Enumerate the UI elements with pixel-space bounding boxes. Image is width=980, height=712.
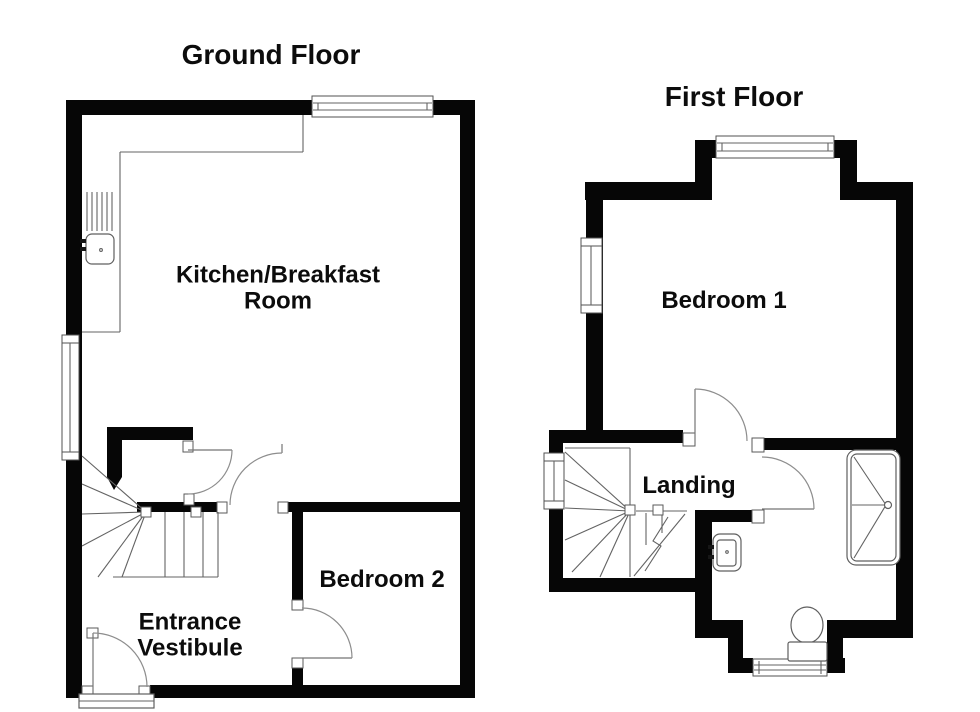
entrance-step (79, 694, 154, 708)
landing-side-window (544, 453, 564, 509)
cupboard-door (188, 450, 232, 494)
first-floor-title: First Floor (665, 82, 803, 112)
room-label-bedroom1: Bedroom 1 (661, 288, 786, 314)
first-floor-plan (544, 136, 913, 676)
bedroom1-side-window (581, 238, 602, 313)
bay-window (716, 136, 834, 158)
bathtub (847, 450, 900, 565)
room-label-landing: Landing (642, 473, 735, 499)
bedroom1-door (695, 389, 747, 441)
kitchen-sink (80, 234, 114, 264)
room-label-entrance: Entrance Vestibule (137, 609, 242, 660)
kitchen-door (230, 444, 282, 505)
toilet (788, 607, 827, 661)
room-label-kitchen: Kitchen/Breakfast Room (176, 262, 380, 313)
ground-floor-staircase (82, 456, 218, 577)
room-label-bedroom2: Bedroom 2 (319, 567, 444, 593)
first-floor-walls (549, 140, 913, 673)
ground-floor-walls (66, 100, 475, 698)
bathroom-door (762, 457, 814, 509)
floorplan-drawing (0, 0, 980, 712)
ground-floor-title: Ground Floor (182, 40, 361, 70)
floorplan-image: Ground Floor Kitchen/Breakfast Room Bedr… (0, 0, 980, 712)
kitchen-top-window (312, 96, 433, 117)
bedroom2-door (302, 608, 352, 658)
drainer-hatch (87, 192, 112, 231)
landing-staircase (565, 448, 687, 577)
wash-basin (708, 534, 741, 571)
ground-floor-plan (62, 96, 475, 708)
kitchen-side-window (62, 335, 79, 460)
